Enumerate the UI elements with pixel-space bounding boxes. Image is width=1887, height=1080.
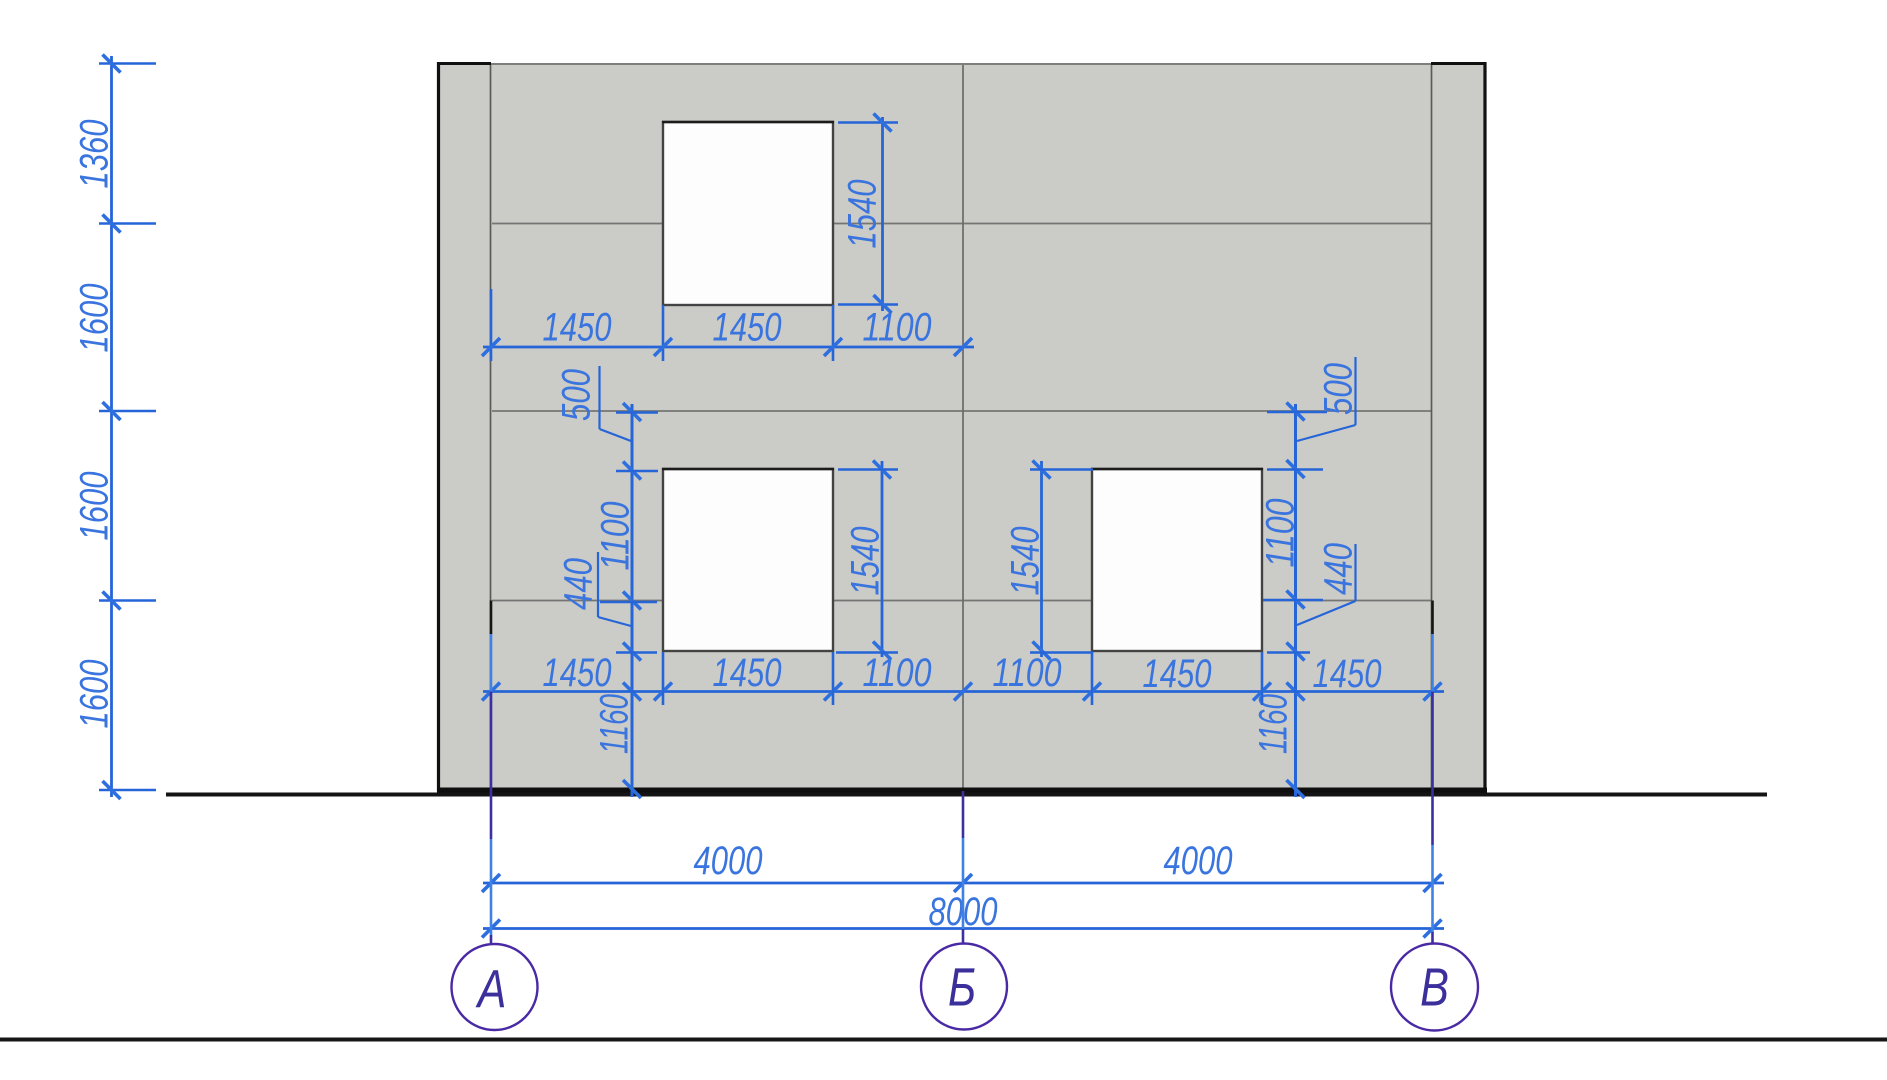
svg-text:1450: 1450 bbox=[1313, 652, 1382, 696]
svg-text:1540: 1540 bbox=[841, 180, 885, 249]
svg-text:1600: 1600 bbox=[73, 284, 117, 353]
svg-text:4000: 4000 bbox=[1164, 839, 1233, 883]
svg-text:1360: 1360 bbox=[73, 120, 117, 189]
svg-text:1100: 1100 bbox=[863, 306, 932, 350]
svg-text:1450: 1450 bbox=[1143, 652, 1212, 696]
svg-text:500: 500 bbox=[555, 369, 599, 421]
svg-text:1450: 1450 bbox=[543, 306, 612, 350]
svg-text:1160: 1160 bbox=[1252, 694, 1296, 754]
svg-text:440: 440 bbox=[557, 558, 601, 610]
svg-text:440: 440 bbox=[1317, 543, 1361, 595]
svg-text:1450: 1450 bbox=[543, 651, 612, 695]
svg-text:1100: 1100 bbox=[993, 651, 1062, 695]
svg-text:1450: 1450 bbox=[713, 306, 782, 350]
svg-text:А: А bbox=[475, 960, 506, 1020]
svg-text:1160: 1160 bbox=[593, 694, 637, 754]
svg-text:1100: 1100 bbox=[863, 651, 932, 695]
svg-text:500: 500 bbox=[1317, 363, 1361, 415]
svg-text:1600: 1600 bbox=[73, 660, 117, 729]
svg-text:1450: 1450 bbox=[713, 651, 782, 695]
svg-text:Б: Б bbox=[948, 958, 976, 1018]
svg-text:1100: 1100 bbox=[1259, 499, 1303, 568]
svg-text:1600: 1600 bbox=[73, 472, 117, 541]
svg-text:В: В bbox=[1420, 958, 1449, 1018]
svg-text:1540: 1540 bbox=[844, 527, 888, 596]
svg-text:1540: 1540 bbox=[1004, 527, 1048, 596]
svg-text:4000: 4000 bbox=[694, 839, 763, 883]
